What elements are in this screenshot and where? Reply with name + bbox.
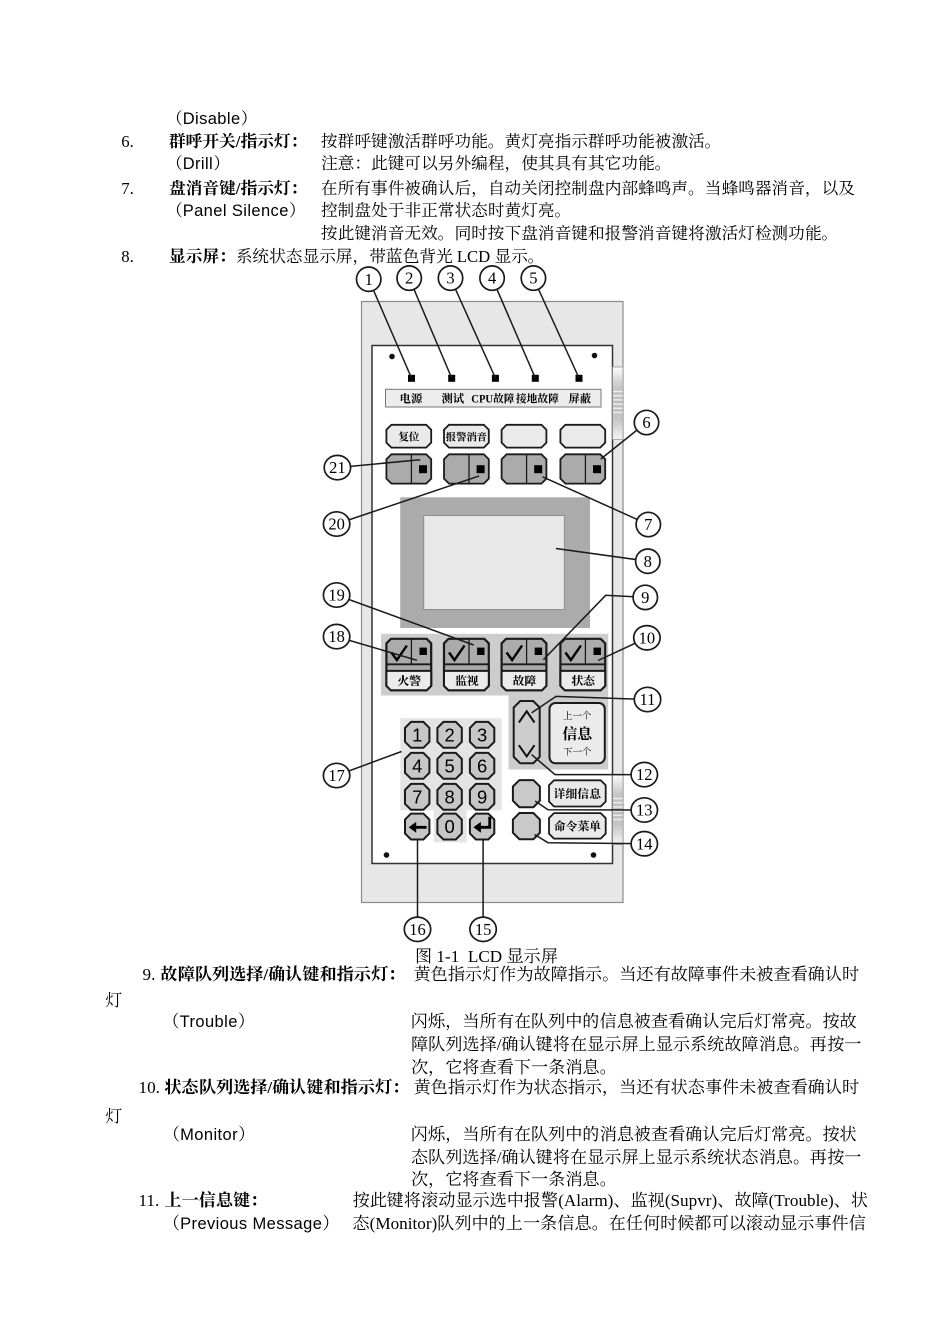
svg-text:2: 2 — [405, 269, 413, 288]
svg-text:4: 4 — [488, 269, 496, 288]
svg-text:监视: 监视 — [455, 674, 479, 688]
svg-text:19: 19 — [328, 586, 345, 605]
svg-text:10: 10 — [639, 628, 656, 647]
svg-text:4: 4 — [412, 756, 422, 777]
svg-text:复位: 复位 — [398, 430, 420, 443]
svg-text:15: 15 — [475, 920, 492, 939]
svg-text:CPU故障: CPU故障 — [471, 393, 515, 406]
svg-text:13: 13 — [636, 801, 653, 820]
svg-text:21: 21 — [329, 458, 346, 477]
svg-text:命令菜单: 命令菜单 — [554, 819, 601, 833]
svg-text:11: 11 — [640, 690, 656, 709]
svg-text:6: 6 — [642, 413, 650, 432]
svg-text:报警消音: 报警消音 — [446, 430, 488, 443]
svg-text:20: 20 — [328, 515, 345, 534]
svg-text:12: 12 — [636, 765, 653, 784]
svg-text:状态: 状态 — [571, 674, 595, 688]
svg-text:7: 7 — [644, 515, 652, 534]
svg-text:下一个: 下一个 — [563, 747, 592, 758]
svg-text:屏蔽: 屏蔽 — [568, 393, 591, 406]
svg-text:17: 17 — [328, 766, 345, 785]
svg-text:详细信息: 详细信息 — [554, 787, 601, 801]
svg-text:9: 9 — [477, 787, 487, 808]
svg-text:3: 3 — [446, 269, 454, 288]
svg-text:上一个: 上一个 — [563, 710, 592, 722]
svg-text:6: 6 — [477, 756, 487, 777]
svg-text:5: 5 — [529, 269, 537, 288]
svg-text:16: 16 — [409, 920, 426, 939]
svg-text:故障: 故障 — [513, 674, 537, 688]
svg-text:1: 1 — [365, 270, 373, 289]
svg-text:9: 9 — [641, 588, 649, 607]
svg-text:1: 1 — [412, 725, 422, 746]
svg-text:火警: 火警 — [397, 674, 421, 688]
svg-text:3: 3 — [477, 725, 487, 746]
svg-text:14: 14 — [636, 834, 653, 853]
svg-text:0: 0 — [444, 816, 454, 837]
svg-text:测试: 测试 — [441, 393, 464, 406]
svg-text:接地故障: 接地故障 — [516, 392, 560, 406]
svg-text:18: 18 — [328, 627, 345, 646]
svg-text:7: 7 — [412, 787, 422, 808]
svg-text:5: 5 — [444, 756, 454, 777]
svg-text:电源: 电源 — [400, 393, 423, 406]
svg-text:8: 8 — [444, 787, 454, 808]
svg-text:2: 2 — [444, 725, 454, 746]
svg-text:信息: 信息 — [562, 726, 592, 743]
svg-text:8: 8 — [644, 552, 652, 571]
